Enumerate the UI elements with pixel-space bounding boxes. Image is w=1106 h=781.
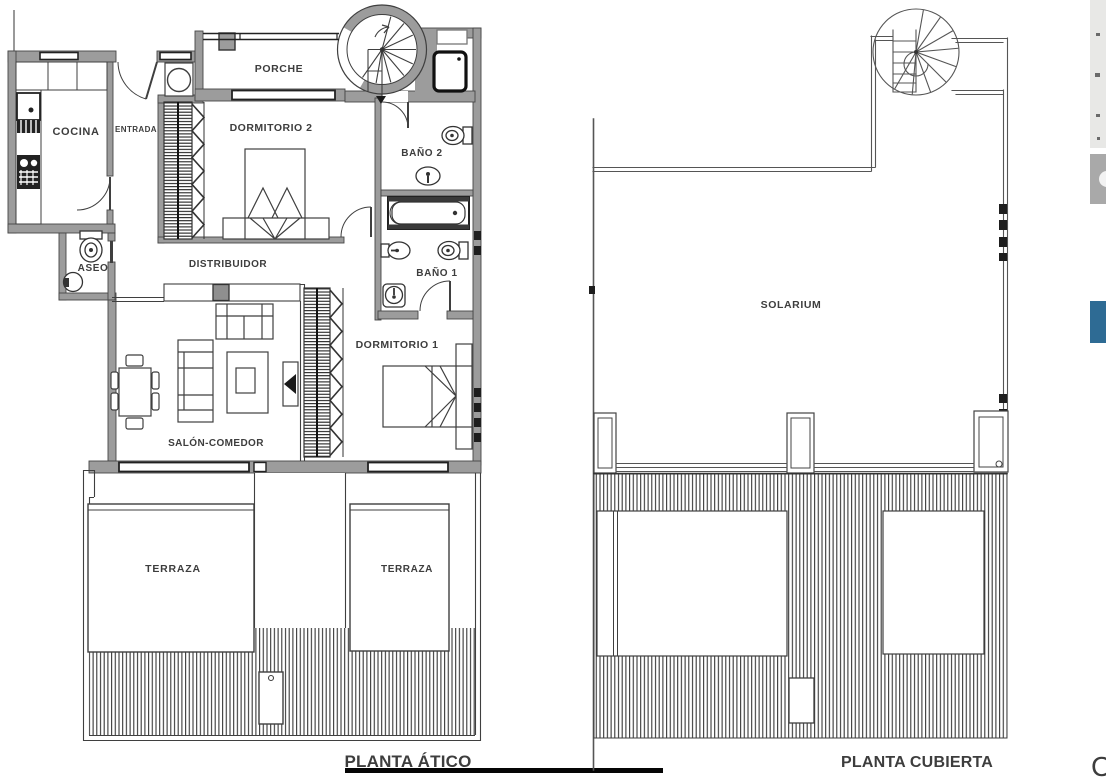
svg-text:SALÓN-COMEDOR: SALÓN-COMEDOR (168, 436, 264, 449)
svg-text:ASEO: ASEO (78, 263, 109, 274)
svg-text:DORMITORIO 2: DORMITORIO 2 (230, 122, 313, 134)
svg-text:SOLARIUM: SOLARIUM (761, 299, 822, 311)
svg-text:PORCHE: PORCHE (255, 63, 304, 75)
svg-text:TERRAZA: TERRAZA (145, 563, 201, 575)
svg-text:BAÑO 2: BAÑO 2 (401, 146, 442, 159)
svg-text:DORMITORIO 1: DORMITORIO 1 (356, 339, 439, 351)
svg-text:DISTRIBUIDOR: DISTRIBUIDOR (189, 259, 268, 270)
svg-text:COCINA: COCINA (53, 126, 100, 138)
svg-text:TERRAZA: TERRAZA (381, 564, 433, 575)
svg-text:BAÑO 1: BAÑO 1 (416, 266, 457, 279)
svg-text:ENTRADA: ENTRADA (115, 125, 157, 134)
svg-text:C: C (1091, 751, 1106, 781)
svg-text:PLANTA CUBIERTA: PLANTA CUBIERTA (841, 754, 993, 771)
